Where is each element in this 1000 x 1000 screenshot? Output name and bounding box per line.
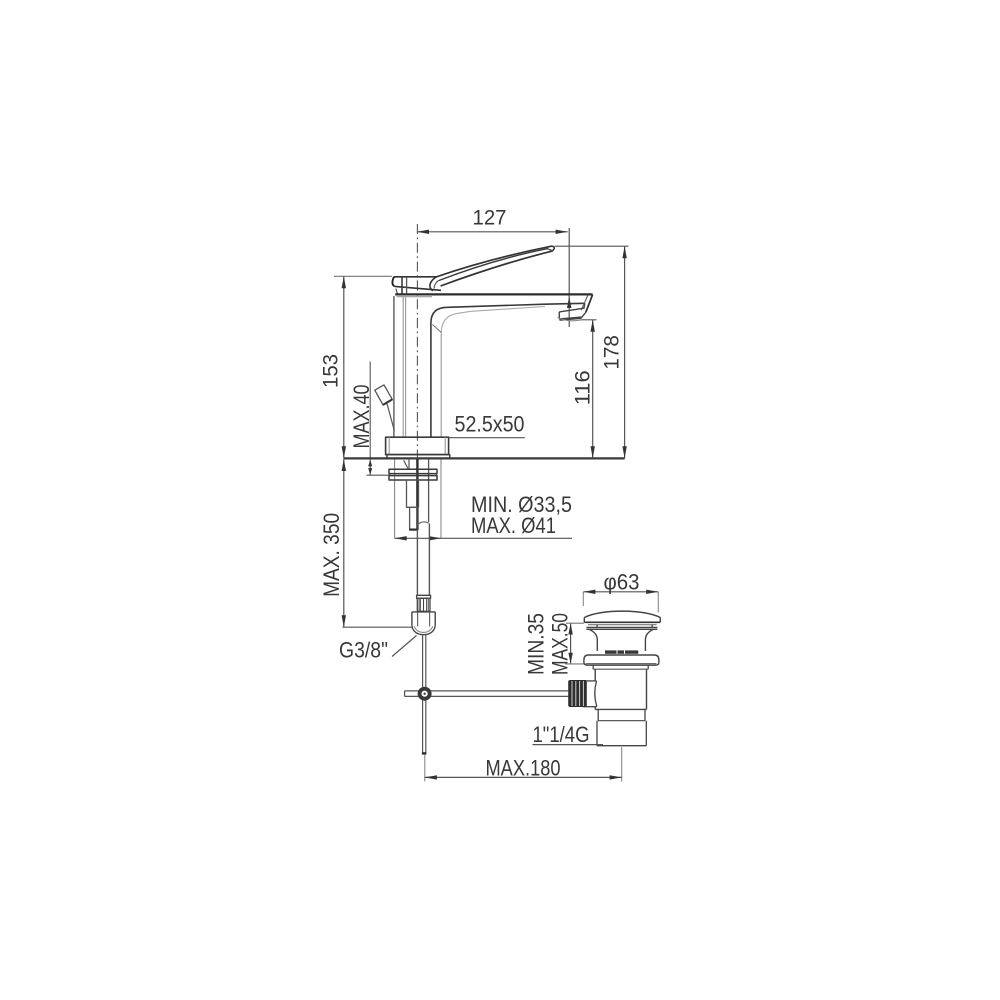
svg-text:MAX.50: MAX.50: [548, 613, 573, 675]
svg-text:φ63: φ63: [604, 570, 640, 595]
svg-text:MAX.180: MAX.180: [486, 756, 561, 781]
svg-text:116: 116: [571, 370, 595, 405]
svg-text:52.5x50: 52.5x50: [455, 412, 525, 437]
svg-text:G3/8": G3/8": [339, 638, 388, 663]
svg-text:MAX. 350: MAX. 350: [319, 513, 344, 597]
svg-text:MAX.40: MAX.40: [349, 385, 374, 449]
svg-text:127: 127: [473, 206, 507, 230]
svg-text:MIN.35: MIN.35: [524, 613, 549, 675]
svg-text:1"1/4G: 1"1/4G: [533, 722, 590, 747]
svg-text:153: 153: [319, 354, 343, 388]
svg-text:MAX. Ø41: MAX. Ø41: [471, 513, 556, 538]
svg-text:178: 178: [600, 335, 624, 370]
